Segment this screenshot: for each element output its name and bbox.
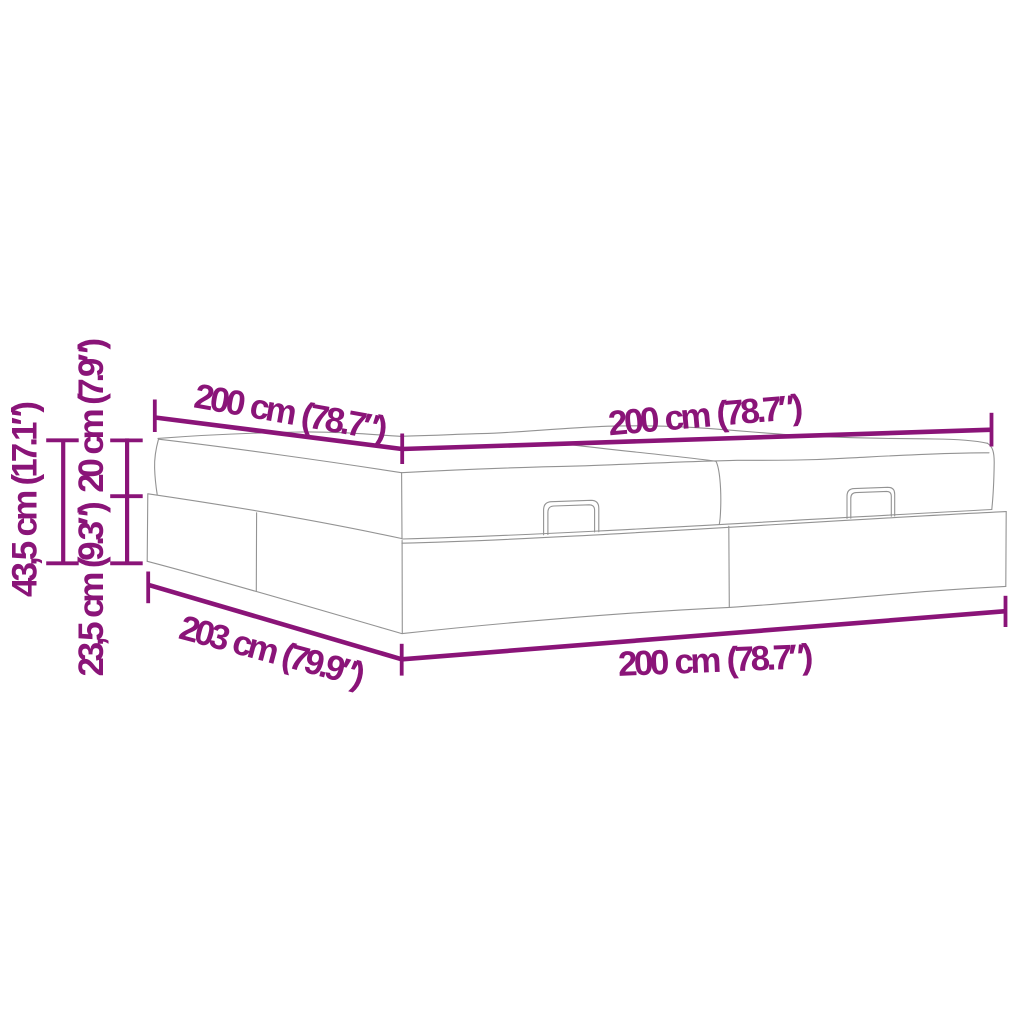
svg-text:43,5 cm (17.1″): 43,5 cm (17.1″) [6, 403, 45, 597]
svg-text:23,5 cm (9.3″): 23,5 cm (9.3″) [72, 503, 111, 677]
svg-text:200 cm (78.7″): 200 cm (78.7″) [617, 637, 812, 684]
svg-text:20 cm (7.9″): 20 cm (7.9″) [72, 340, 111, 493]
